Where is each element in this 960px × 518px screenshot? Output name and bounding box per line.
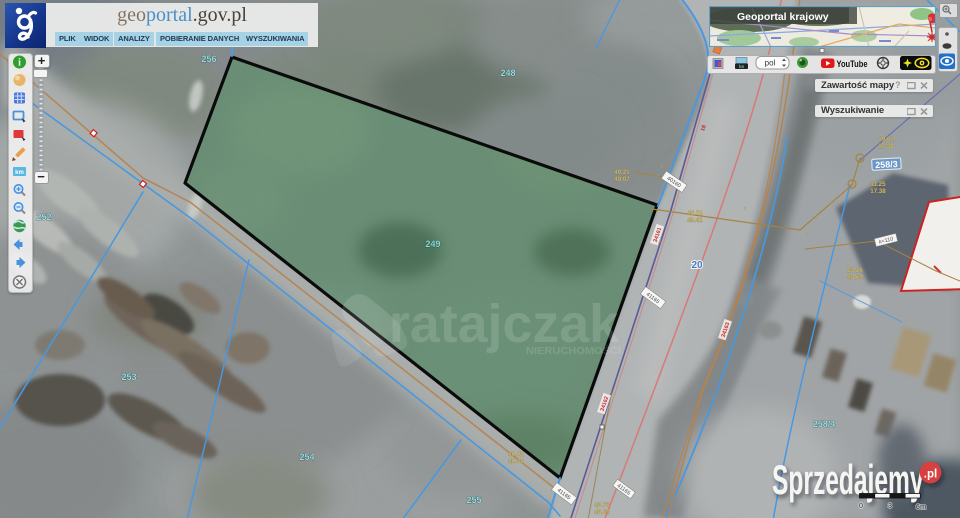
svg-text:40.38: 40.38 (508, 458, 524, 465)
svg-text:46.70: 46.70 (687, 210, 703, 217)
svg-text:x: x (744, 206, 747, 212)
svg-text:20: 20 (691, 260, 703, 271)
svg-text:253: 253 (121, 372, 136, 382)
svg-text:255: 255 (466, 495, 481, 505)
svg-text:YouTube: YouTube (837, 59, 868, 70)
svg-text:km: km (15, 170, 24, 176)
svg-text:258/3: 258/3 (875, 159, 898, 170)
svg-text:256: 256 (201, 54, 216, 64)
svg-text:Geoportal krajowy: Geoportal krajowy (737, 11, 829, 23)
svg-text:17.38: 17.38 (878, 143, 894, 150)
svg-text:258/4: 258/4 (813, 419, 836, 429)
svg-text:.pl: .pl (924, 469, 937, 481)
svg-text:6m: 6m (916, 502, 926, 511)
svg-text:3: 3 (888, 501, 892, 510)
svg-text:254: 254 (299, 452, 314, 462)
svg-text:0: 0 (859, 501, 863, 510)
svg-text:x: x (806, 232, 809, 238)
svg-text:40.07: 40.07 (614, 176, 630, 183)
svg-text:48.69: 48.69 (594, 509, 610, 516)
svg-text:249: 249 (425, 239, 440, 249)
svg-text:17.38: 17.38 (870, 188, 886, 195)
svg-text:248: 248 (500, 68, 515, 78)
svg-text:40.21: 40.21 (614, 169, 630, 176)
svg-text:19.01: 19.01 (878, 136, 894, 143)
svg-text:11.25: 11.25 (870, 181, 886, 188)
svg-text:km: km (739, 64, 745, 70)
svg-text:48.69: 48.69 (847, 274, 863, 281)
svg-text:48.73: 48.73 (594, 502, 610, 509)
svg-text:i: i (18, 58, 21, 69)
svg-text:252: 252 (36, 212, 51, 222)
svg-text:49.41: 49.41 (687, 217, 703, 224)
svg-text:23.26: 23.26 (847, 267, 863, 274)
svg-text:NIERUCHOMOŚCI: NIERUCHOMOŚCI (526, 344, 621, 357)
svg-text:x: x (661, 164, 664, 170)
svg-text:40.02: 40.02 (508, 451, 524, 458)
svg-text:pol: pol (765, 58, 776, 67)
